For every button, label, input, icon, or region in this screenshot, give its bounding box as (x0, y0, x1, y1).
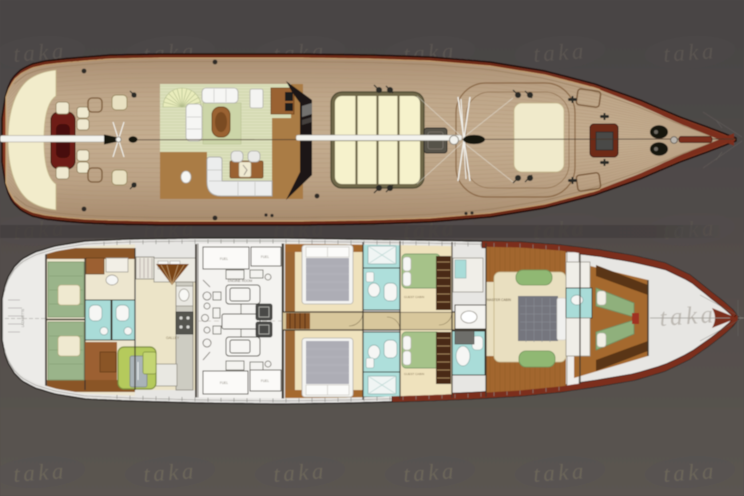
svg-text:taka: taka (662, 458, 717, 487)
svg-text:GALLEY: GALLEY (166, 336, 180, 340)
svg-text:taka: taka (402, 458, 457, 487)
svg-text:taka: taka (662, 38, 717, 67)
svg-text:ENGINE ROOM: ENGINE ROOM (228, 279, 253, 283)
svg-text:LAZARETTE: LAZARETTE (21, 309, 25, 327)
svg-text:GUEST CABIN: GUEST CABIN (404, 372, 424, 376)
svg-text:MASTER CABIN: MASTER CABIN (487, 298, 512, 302)
svg-text:FUEL: FUEL (220, 381, 228, 385)
svg-text:taka: taka (532, 38, 587, 67)
svg-text:FUEL: FUEL (261, 379, 269, 383)
svg-text:taka: taka (142, 458, 197, 487)
svg-text:GUEST CABIN: GUEST CABIN (404, 295, 424, 299)
svg-text:taka: taka (272, 458, 327, 487)
svg-text:taka: taka (532, 458, 587, 487)
svg-text:FUEL: FUEL (261, 255, 269, 259)
svg-text:FUEL: FUEL (220, 257, 228, 261)
svg-text:taka: taka (659, 301, 718, 332)
svg-text:taka: taka (12, 458, 67, 487)
